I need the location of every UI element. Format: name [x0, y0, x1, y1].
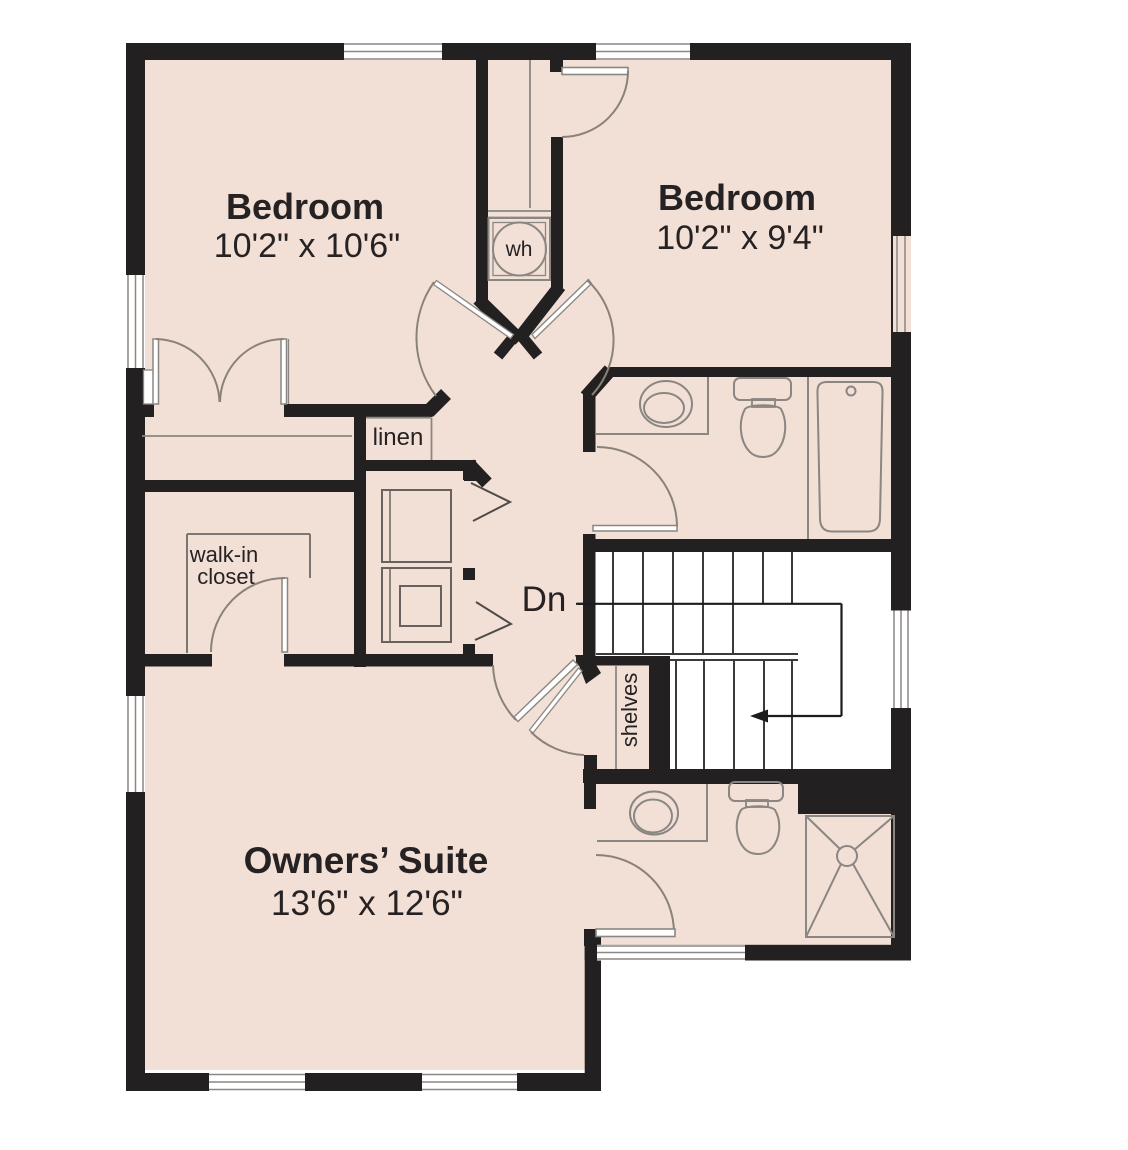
- svg-text:linen: linen: [373, 424, 424, 451]
- svg-text:wh: wh: [505, 238, 533, 261]
- svg-text:Bedroom: Bedroom: [658, 177, 816, 218]
- svg-text:10'2" x 10'6": 10'2" x 10'6": [214, 227, 400, 265]
- svg-text:Dn: Dn: [522, 580, 567, 619]
- svg-text:closet: closet: [197, 564, 254, 589]
- svg-text:Owners’ Suite: Owners’ Suite: [244, 840, 489, 881]
- svg-text:shelves: shelves: [617, 673, 642, 748]
- svg-text:13'6" x 12'6": 13'6" x 12'6": [271, 884, 463, 923]
- svg-text:10'2" x 9'4": 10'2" x 9'4": [656, 219, 824, 257]
- svg-text:Bedroom: Bedroom: [226, 186, 384, 227]
